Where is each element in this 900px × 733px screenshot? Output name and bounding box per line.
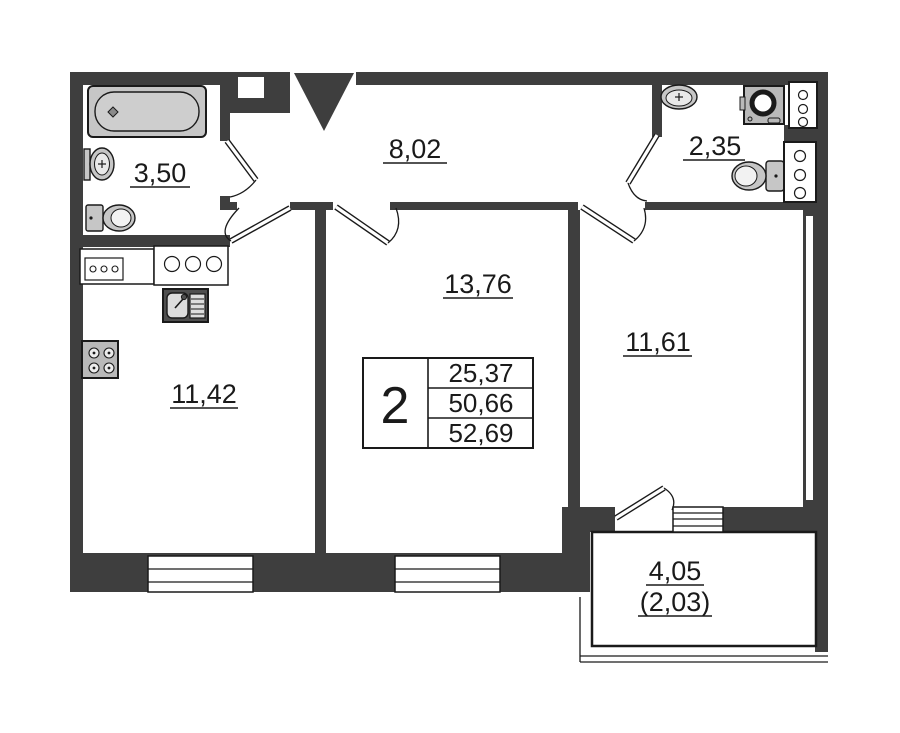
balcony-window (673, 507, 723, 532)
table-rooms-count: 2 (381, 377, 410, 435)
room-area-label-wc: 2,35 (689, 131, 742, 161)
bathtub-icon (88, 86, 206, 137)
floor-plan: 3,50 8,02 2,35 13,76 11,42 11,61 4,05 (2… (0, 0, 900, 733)
wc-sink-icon (661, 85, 697, 109)
washing-machine-icon (740, 86, 784, 124)
table-area-no-balcony: 50,66 (448, 388, 513, 418)
room-area-label-balcony-reduced: (2,03) (640, 587, 711, 617)
entrance-door-icon (294, 73, 354, 131)
door-living (336, 207, 399, 243)
table-living-area: 25,37 (448, 358, 513, 388)
bath-sink-icon (84, 148, 114, 180)
table-total-area: 52,69 (448, 418, 513, 448)
window (395, 556, 500, 592)
room-area-label-bathroom: 3,50 (134, 158, 187, 188)
door-bathroom (227, 141, 256, 197)
vent-shaft-icon (789, 82, 817, 128)
door-wc (628, 135, 657, 201)
vent-shaft-icon (784, 142, 816, 202)
door-bedroom (582, 207, 646, 241)
cooktop-counter-icon (154, 246, 228, 285)
bath-toilet-icon (86, 205, 135, 231)
room-area-label-hallway: 8,02 (389, 134, 442, 164)
door-kitchen (225, 208, 290, 241)
room-area-label-kitchen: 11,42 (171, 379, 237, 409)
wc-toilet-icon (732, 161, 784, 191)
door-balcony (616, 488, 674, 518)
room-area-label-balcony: 4,05 (649, 556, 702, 586)
stove-icon (82, 341, 118, 378)
kitchen-sink-icon (163, 289, 208, 322)
room-area-label-bedroom: 11,61 (625, 327, 691, 357)
apartment-info-table: 2 25,37 50,66 52,69 (363, 358, 533, 448)
window (148, 556, 253, 592)
wall-channel (806, 216, 813, 500)
entrance-niche (238, 77, 264, 98)
floor-plan-svg: 3,50 8,02 2,35 13,76 11,42 11,61 4,05 (2… (0, 0, 900, 733)
kitchen-counter-icon (80, 249, 154, 284)
room-area-label-living: 13,76 (444, 269, 512, 299)
